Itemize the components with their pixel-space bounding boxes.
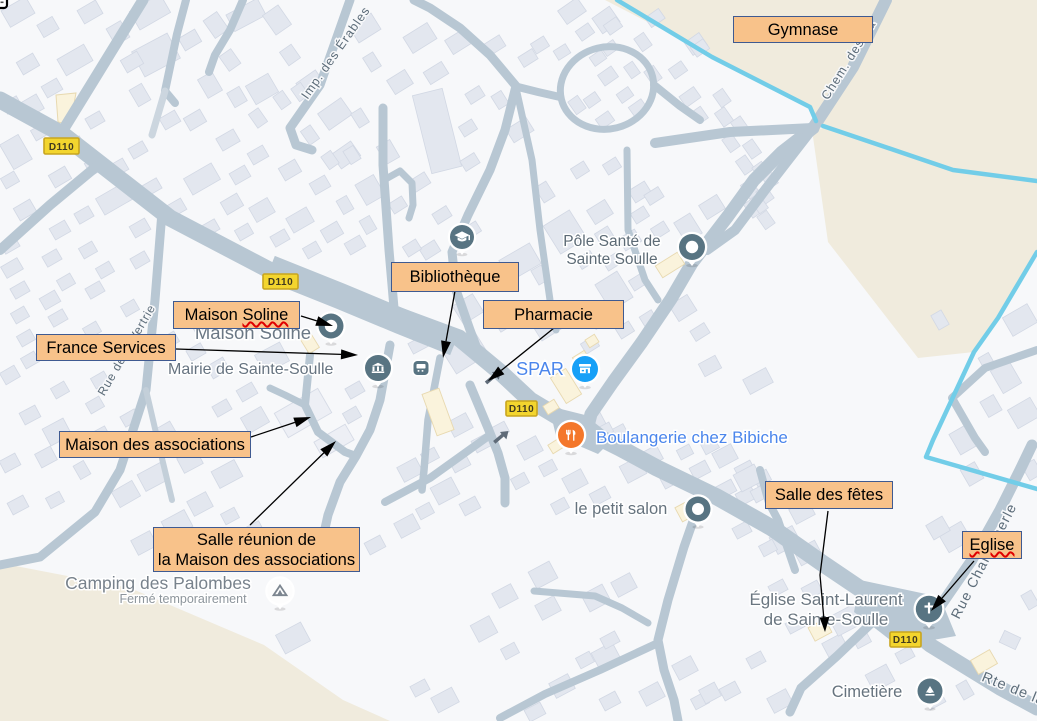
svg-text:D110: D110 <box>893 635 918 646</box>
svg-text:Camping des Palombes: Camping des Palombes <box>65 573 251 593</box>
svg-text:D110: D110 <box>49 142 74 153</box>
svg-text:Pôle Santé de: Pôle Santé de <box>563 233 660 250</box>
svg-text:D110: D110 <box>509 404 534 415</box>
svg-text:SPAR: SPAR <box>516 359 564 379</box>
svg-text:le petit salon: le petit salon <box>575 500 668 518</box>
svg-text:Église Saint-Laurent: Église Saint-Laurent <box>749 590 902 609</box>
svg-text:Boulangerie chez Bibiche: Boulangerie chez Bibiche <box>596 428 788 447</box>
svg-text:D110: D110 <box>268 277 293 288</box>
svg-text:Fermé temporairement: Fermé temporairement <box>119 592 247 606</box>
svg-text:Cimetière: Cimetière <box>832 683 903 701</box>
svg-text:Mairie de Sainte-Soulle: Mairie de Sainte-Soulle <box>168 361 334 378</box>
svg-text:Sainte Soulle: Sainte Soulle <box>566 251 657 268</box>
